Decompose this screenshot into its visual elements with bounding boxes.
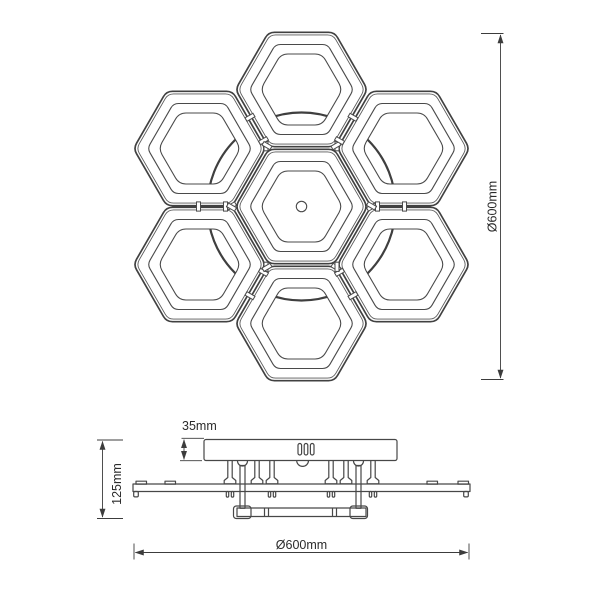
mount-leg xyxy=(224,461,236,484)
cable-cover-bump xyxy=(297,461,309,467)
hexagon-outer-frame xyxy=(237,149,366,263)
hexagon-outer-frame xyxy=(237,32,366,146)
lamp-technical-drawing: Ø600mm 35mm 125mm Ø600mm xyxy=(0,0,600,600)
drawing-page: Ø600mm 35mm 125mm Ø600mm xyxy=(0,0,600,600)
hexagon-middle-frame xyxy=(353,220,455,310)
dim-fixture-height-label: 125mm xyxy=(110,463,124,505)
mount-leg xyxy=(325,461,337,484)
hexagon-module xyxy=(135,207,264,321)
hexagon-module xyxy=(237,32,366,146)
connector-tab xyxy=(335,262,339,271)
connector-tab xyxy=(197,202,201,211)
hexagon-module xyxy=(237,266,366,380)
hexagon-module xyxy=(237,149,366,263)
top-view-hexagon-cluster xyxy=(135,32,468,380)
hexagon-module xyxy=(135,91,264,205)
vent-slot xyxy=(310,444,314,456)
dim-diameter-label: Ø600mm xyxy=(486,181,500,232)
dimension-top-view-diameter: Ø600mm xyxy=(481,34,504,380)
dimension-fixture-height: 125mm xyxy=(97,440,124,519)
hexagon-module xyxy=(339,91,468,205)
hexagon-outer-frame xyxy=(339,91,468,205)
screw-stub xyxy=(226,492,228,498)
hexagon-outer-frame xyxy=(339,207,468,321)
screw-stub xyxy=(327,492,329,498)
hexagon-outer-frame xyxy=(135,91,264,205)
hexagon-middle-frame xyxy=(251,45,353,135)
vent-slot xyxy=(298,444,302,456)
center-mount-hole xyxy=(296,201,306,211)
screw-stub xyxy=(374,492,376,498)
hexagon-middle-frame xyxy=(149,104,251,194)
module-connector-tabs xyxy=(197,113,407,299)
hexagon-diffuser xyxy=(262,288,341,359)
dim-width-label: Ø600mm xyxy=(276,538,327,552)
hexagon-module xyxy=(339,207,468,321)
hexagon-outer-frame xyxy=(237,266,366,380)
hexagon-middle-frame xyxy=(149,220,251,310)
screw-stub xyxy=(273,492,275,498)
base-plate-arc xyxy=(208,113,396,301)
hexagon-diffuser xyxy=(262,54,341,125)
screw-stub xyxy=(464,492,469,497)
screw-stub xyxy=(268,492,270,498)
connector-tab xyxy=(403,202,407,211)
dim-canopy-height-label: 35mm xyxy=(182,419,217,433)
hexagon-outer-frame xyxy=(135,207,264,321)
hexagon-diffuser xyxy=(262,171,341,242)
canopy xyxy=(204,440,397,461)
mount-leg xyxy=(340,461,352,484)
mount-leg xyxy=(251,461,263,484)
dimension-side-view-diameter: Ø600mm xyxy=(134,538,469,560)
vent-slot xyxy=(304,444,308,456)
screw-stub xyxy=(332,492,334,498)
mount-leg xyxy=(367,461,379,484)
screw-stub xyxy=(231,492,233,498)
support-rod xyxy=(356,466,361,509)
hexagon-middle-frame xyxy=(353,104,455,194)
mount-leg xyxy=(266,461,278,484)
screw-stub xyxy=(369,492,371,498)
screw-stub xyxy=(134,492,139,497)
hexagon-middle-frame xyxy=(251,162,353,252)
hexagon-middle-frame xyxy=(251,279,353,369)
main-plate xyxy=(133,484,470,492)
lower-plate xyxy=(237,508,366,517)
support-rod xyxy=(240,466,245,509)
